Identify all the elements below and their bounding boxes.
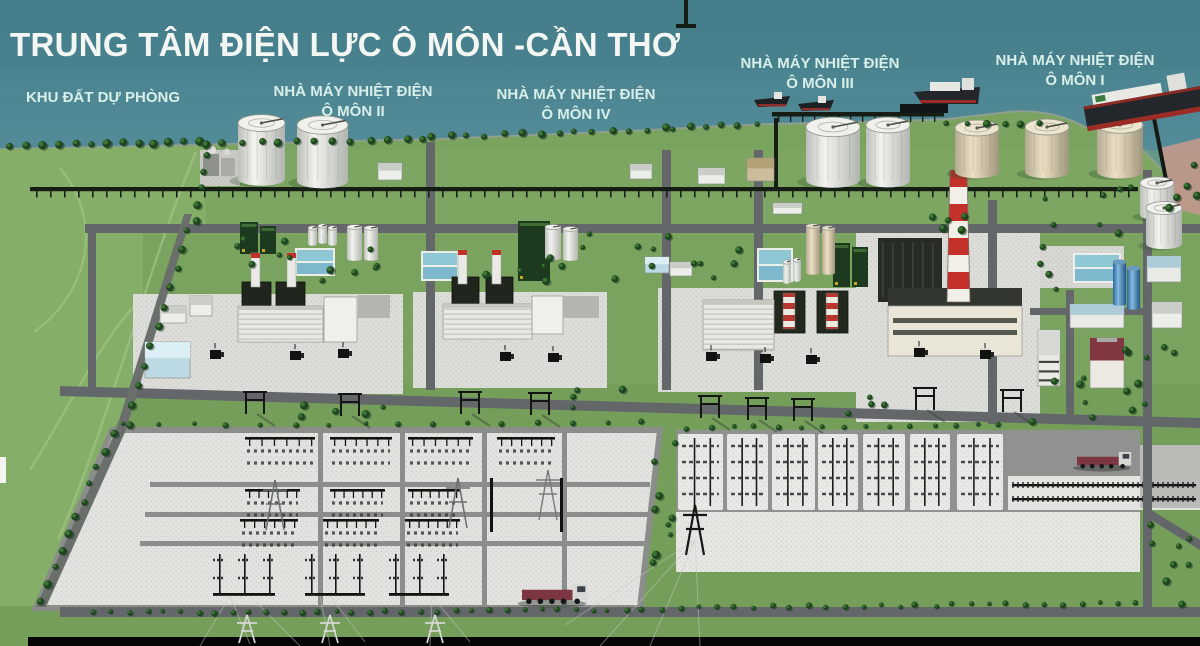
site-plan-canvas (0, 0, 1200, 646)
storage-tank (783, 260, 791, 284)
warehouse (630, 164, 652, 179)
switchyard-bay (957, 434, 1003, 510)
window-band (893, 318, 1017, 323)
storage-tank (1127, 266, 1140, 310)
road (88, 233, 96, 389)
turbine-hall (238, 306, 323, 342)
storage-tank (308, 226, 317, 246)
switchyard-bay (818, 434, 858, 510)
switchyard-lane (140, 541, 645, 546)
storage-tank (318, 224, 327, 244)
exhaust-stack (458, 250, 467, 284)
bottom-border-bar (28, 637, 1200, 646)
busbar-vertical (560, 478, 563, 532)
control-building (1038, 330, 1060, 386)
warehouse (190, 296, 212, 316)
chimney-stack (947, 170, 970, 302)
switchyard-left (36, 430, 660, 608)
auxiliary-building (563, 296, 599, 318)
process-unit (852, 247, 868, 287)
auxiliary-building (358, 295, 390, 318)
storage-tank (806, 224, 820, 275)
warehouse (670, 262, 692, 276)
storage-tank (1113, 260, 1126, 306)
warehouse (378, 163, 402, 180)
process-unit (833, 243, 850, 287)
water-shading (0, 0, 1200, 70)
exhaust-stack (492, 250, 501, 284)
process-unit (260, 226, 276, 254)
generator-hall (532, 296, 563, 334)
storage-tank (563, 227, 578, 261)
site-render: TRUNG TÂM ĐIỆN LỰC Ô MÔN -CẦN THƠ KHU ĐẤ… (0, 0, 1200, 646)
warehouse (698, 168, 725, 184)
warehouse (645, 257, 669, 273)
left-edge-marker (0, 457, 6, 483)
striped-stack (826, 293, 838, 329)
storage-tank (288, 116, 348, 190)
storage-tank (822, 226, 835, 275)
storage-tank (364, 226, 378, 261)
turbine-hall (703, 300, 774, 350)
switchyard-lane (145, 512, 648, 517)
warehouse (773, 203, 802, 214)
window-band (893, 330, 1017, 335)
striped-stack (783, 293, 795, 329)
switchyard-lane (482, 432, 487, 606)
switchyard-bay (910, 434, 950, 510)
admin-building (1090, 338, 1124, 388)
storage-tank (545, 224, 561, 260)
exhaust-stack (251, 253, 260, 287)
switchyard-bay (772, 434, 815, 510)
storage-tank (328, 226, 337, 246)
turbine-hall (443, 304, 532, 339)
warehouse (1152, 302, 1182, 328)
storage-tank (347, 225, 362, 261)
switchyard-bay (678, 434, 723, 510)
water-treatment-pool (421, 251, 459, 281)
switchyard-lane (318, 432, 323, 606)
switchyard-lane (400, 432, 405, 606)
storage-tank (793, 258, 801, 282)
generator-hall (324, 297, 357, 342)
office-building (1147, 256, 1181, 282)
storage-tank (797, 117, 860, 189)
switchyard-bay (863, 434, 905, 510)
switchyard-right (676, 430, 1200, 572)
office-building (1070, 304, 1124, 328)
busbar-vertical (490, 478, 493, 532)
switchyard-bay (727, 434, 768, 510)
gas-station-building (747, 158, 774, 181)
